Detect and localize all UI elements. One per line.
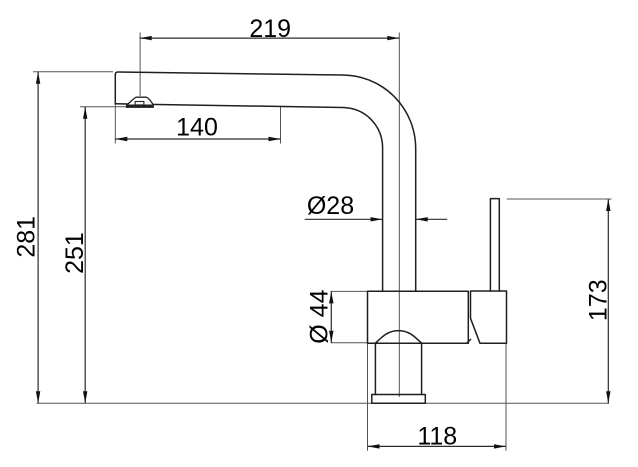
svg-text:219: 219 [249, 15, 291, 43]
svg-text:Ø28: Ø28 [307, 192, 354, 220]
svg-text:281: 281 [12, 216, 40, 258]
svg-text:173: 173 [584, 279, 612, 321]
svg-text:118: 118 [417, 423, 457, 451]
svg-text:140: 140 [176, 114, 218, 142]
svg-text:251: 251 [61, 232, 89, 274]
svg-text:Ø 44: Ø 44 [306, 289, 334, 343]
